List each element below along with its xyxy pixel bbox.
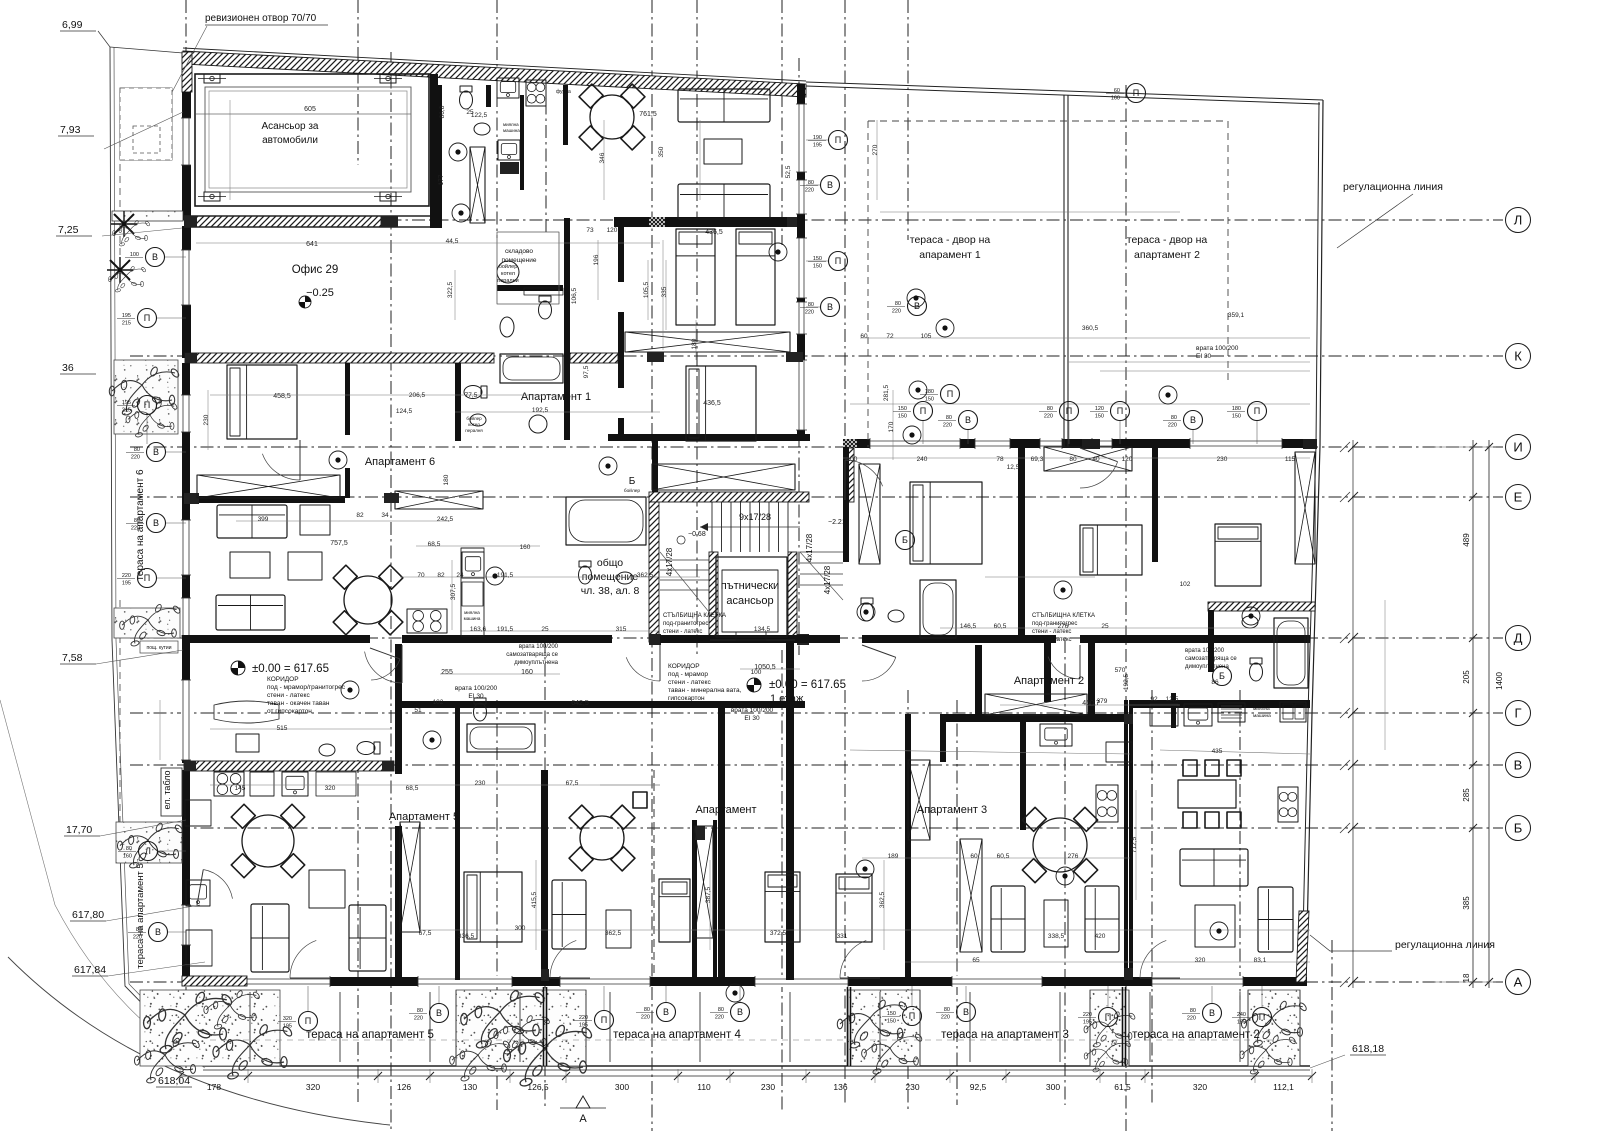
svg-text:191,5: 191,5	[497, 626, 514, 633]
svg-text:146,5: 146,5	[960, 623, 977, 630]
svg-text:В: В	[1190, 415, 1196, 425]
svg-text:379: 379	[1097, 698, 1108, 705]
svg-text:12,5: 12,5	[1166, 696, 1179, 703]
svg-text:97,5: 97,5	[583, 365, 590, 378]
svg-text:160: 160	[1111, 96, 1120, 102]
svg-text:П: П	[601, 1015, 607, 1025]
svg-text:362,5: 362,5	[605, 930, 622, 937]
svg-text:195: 195	[122, 400, 131, 406]
svg-text:195: 195	[122, 581, 131, 587]
svg-text:191,5: 191,5	[497, 572, 514, 579]
svg-text:220: 220	[715, 1015, 724, 1021]
svg-text:В: В	[436, 1008, 442, 1018]
svg-text:195: 195	[1237, 1020, 1246, 1026]
svg-text:60,5: 60,5	[994, 623, 1007, 630]
svg-text:П: П	[1117, 406, 1123, 416]
svg-text:220: 220	[805, 188, 814, 194]
svg-text:215: 215	[122, 408, 131, 414]
svg-text:80: 80	[134, 518, 140, 524]
svg-text:145: 145	[235, 785, 246, 792]
svg-text:150: 150	[1095, 414, 1104, 420]
svg-text:102: 102	[433, 699, 444, 706]
svg-text:240: 240	[1237, 1012, 1246, 1018]
svg-text:70: 70	[417, 572, 425, 579]
svg-text:338,5: 338,5	[1048, 933, 1065, 940]
svg-text:86,8: 86,8	[439, 105, 446, 118]
svg-text:458,5: 458,5	[273, 393, 291, 400]
svg-text:67,5: 67,5	[419, 930, 432, 937]
svg-text:112,1: 112,1	[1273, 1082, 1294, 1092]
svg-text:В: В	[155, 927, 161, 937]
svg-text:6,99: 6,99	[62, 19, 83, 31]
svg-text:92: 92	[1150, 696, 1158, 703]
svg-text:195: 195	[122, 313, 131, 319]
svg-text:34: 34	[381, 512, 389, 519]
svg-text:СТЪЛБИЩНА КЛЕТКА: СТЪЛБИЩНА КЛЕТКА	[1032, 613, 1095, 619]
svg-text:Д: Д	[1514, 631, 1523, 646]
svg-text:195: 195	[813, 143, 822, 149]
svg-text:Б: Б	[1219, 671, 1225, 681]
svg-text:80: 80	[718, 1007, 724, 1013]
svg-text:150: 150	[1232, 414, 1241, 420]
svg-text:80: 80	[417, 1008, 423, 1014]
svg-text:52,5: 52,5	[785, 165, 792, 178]
svg-text:220: 220	[414, 1016, 423, 1022]
svg-text:Л: Л	[1514, 213, 1523, 228]
svg-text:80: 80	[1190, 1008, 1196, 1014]
svg-text:220: 220	[1083, 1012, 1092, 1018]
svg-text:1400: 1400	[1495, 672, 1504, 690]
svg-text:помещение: помещение	[502, 257, 537, 264]
svg-text:220: 220	[641, 1015, 650, 1021]
svg-text:60: 60	[1114, 88, 1120, 94]
svg-text:220: 220	[943, 423, 952, 429]
svg-text:миялна: миялна	[503, 122, 519, 127]
svg-text:36: 36	[62, 362, 74, 374]
svg-text:110: 110	[697, 1082, 711, 1092]
svg-text:регулационна линия: регулационна линия	[1343, 181, 1443, 193]
svg-text:51: 51	[414, 707, 422, 714]
svg-text:А: А	[1514, 975, 1523, 990]
svg-text:−0.68: −0.68	[688, 531, 706, 538]
svg-text:120: 120	[607, 227, 618, 234]
svg-text:1 етаж: 1 етаж	[770, 693, 804, 705]
svg-text:КОРИДОР: КОРИДОР	[267, 676, 299, 683]
svg-text:617,80: 617,80	[72, 909, 104, 921]
svg-text:Е: Е	[1514, 490, 1523, 505]
svg-text:320: 320	[1195, 957, 1206, 964]
svg-text:360,5: 360,5	[1082, 325, 1099, 332]
svg-text:82: 82	[437, 572, 445, 579]
svg-text:80: 80	[895, 301, 901, 307]
svg-text:7,58: 7,58	[62, 652, 83, 664]
svg-text:78: 78	[996, 456, 1004, 463]
svg-text:димоуплътнена: димоуплътнена	[514, 660, 558, 666]
svg-text:П: П	[1259, 1012, 1265, 1022]
svg-text:60: 60	[970, 853, 978, 860]
svg-text:фурна: фурна	[556, 89, 571, 95]
svg-text:80: 80	[126, 846, 132, 852]
svg-text:П: П	[920, 406, 926, 416]
svg-text:100: 100	[130, 252, 139, 258]
svg-text:ел. табло: ел. табло	[162, 770, 172, 809]
svg-text:Г: Г	[1514, 706, 1521, 721]
svg-text:320: 320	[325, 785, 336, 792]
svg-text:72: 72	[886, 333, 894, 340]
svg-text:320: 320	[306, 1082, 320, 1092]
svg-text:120: 120	[1122, 456, 1133, 463]
svg-text:врата 100/200: врата 100/200	[519, 644, 559, 650]
svg-text:170: 170	[888, 421, 895, 432]
svg-text:215: 215	[122, 321, 131, 327]
svg-text:230: 230	[475, 780, 486, 787]
svg-text:435: 435	[1212, 748, 1223, 755]
svg-text:124,5: 124,5	[396, 408, 413, 415]
svg-text:бойлер: бойлер	[499, 263, 518, 270]
svg-text:242,5: 242,5	[437, 516, 454, 523]
svg-text:апарамент 1: апарамент 1	[919, 249, 981, 261]
svg-text:220: 220	[131, 455, 140, 461]
svg-text:машина: машина	[503, 128, 520, 133]
svg-text:68,5: 68,5	[406, 785, 419, 792]
svg-text:160: 160	[521, 669, 533, 676]
svg-text:150: 150	[813, 264, 822, 270]
svg-text:300: 300	[1046, 1082, 1060, 1092]
svg-text:220: 220	[1168, 423, 1177, 429]
svg-text:134,5: 134,5	[754, 626, 771, 633]
svg-text:складово: складово	[505, 248, 533, 255]
svg-text:П: П	[305, 1016, 311, 1026]
svg-text:195: 195	[283, 1024, 292, 1030]
svg-text:машина: машина	[1253, 714, 1271, 719]
svg-text:В: В	[153, 447, 159, 457]
svg-text:605: 605	[304, 106, 316, 113]
svg-text:П: П	[1133, 88, 1139, 98]
svg-text:641: 641	[306, 241, 318, 248]
svg-text:80: 80	[1047, 406, 1053, 412]
svg-text:65: 65	[972, 957, 980, 964]
svg-text:220: 220	[1187, 1016, 1196, 1022]
svg-text:Б: Б	[629, 476, 636, 487]
svg-text:ревизионен отвор 70/70: ревизионен отвор 70/70	[205, 13, 317, 24]
svg-text:757,5: 757,5	[330, 540, 348, 547]
svg-text:В: В	[737, 1007, 743, 1017]
svg-text:врата 100/200: врата 100/200	[1185, 648, 1225, 654]
svg-text:712,5: 712,5	[1131, 836, 1138, 853]
svg-text:4x17/28: 4x17/28	[823, 565, 832, 594]
svg-text:350: 350	[658, 146, 665, 157]
svg-text:220: 220	[131, 526, 140, 532]
svg-text:В: В	[1514, 758, 1523, 773]
svg-text:П: П	[835, 135, 841, 145]
svg-text:апартамент 2: апартамент 2	[1134, 249, 1200, 261]
svg-text:В: В	[152, 252, 158, 262]
svg-text:515: 515	[277, 725, 288, 732]
svg-text:под-гранитогрес: под-гранитогрес	[1032, 621, 1077, 627]
svg-text:220: 220	[892, 309, 901, 315]
svg-text:120: 120	[1095, 406, 1104, 412]
svg-text:КОРИДОР: КОРИДОР	[668, 663, 700, 670]
svg-text:761,5: 761,5	[639, 111, 657, 118]
svg-text:стени - латекс: стени - латекс	[267, 692, 310, 699]
svg-text:под - мрамор/гранитогрес: под - мрамор/гранитогрес	[267, 684, 346, 691]
svg-text:196: 196	[593, 254, 600, 265]
svg-text:П: П	[144, 573, 150, 583]
svg-text:Апартамент 5: Апартамент 5	[389, 811, 459, 823]
svg-text:В: В	[663, 1007, 669, 1017]
svg-text:пътнически: пътнически	[721, 580, 779, 592]
svg-text:пощ. кутии: пощ. кутии	[147, 645, 172, 651]
svg-text:150: 150	[898, 406, 907, 412]
svg-text:чл. 38, ал. 8: чл. 38, ал. 8	[581, 585, 640, 597]
svg-text:177: 177	[438, 174, 445, 185]
svg-text:80: 80	[1069, 456, 1077, 463]
svg-text:60,5: 60,5	[997, 853, 1010, 860]
svg-text:126,5: 126,5	[527, 1082, 549, 1092]
svg-text:315: 315	[616, 626, 627, 633]
svg-text:Б: Б	[902, 535, 908, 545]
svg-text:436,5: 436,5	[705, 229, 723, 236]
svg-text:П: П	[1254, 406, 1260, 416]
svg-text:220: 220	[805, 310, 814, 316]
svg-text:П: П	[1066, 406, 1072, 416]
svg-text:160: 160	[520, 544, 531, 551]
svg-text:220: 220	[1044, 414, 1053, 420]
svg-text:195: 195	[1083, 1020, 1092, 1026]
svg-text:230: 230	[761, 1082, 775, 1092]
svg-text:281,5: 281,5	[883, 384, 890, 401]
svg-text:102: 102	[1180, 581, 1191, 588]
svg-text:±0.00 = 617.65: ±0.00 = 617.65	[252, 663, 329, 675]
svg-text:322,5: 322,5	[447, 281, 454, 298]
svg-text:самозатваряща се: самозатваряща се	[1185, 656, 1237, 662]
svg-text:18: 18	[1462, 973, 1471, 982]
svg-text:300: 300	[615, 1082, 629, 1092]
svg-text:359,1: 359,1	[1228, 312, 1245, 319]
svg-text:285: 285	[1462, 788, 1471, 802]
svg-text:Асансьор за: Асансьор за	[261, 121, 318, 132]
svg-text:420: 420	[1095, 933, 1106, 940]
svg-text:40: 40	[1092, 456, 1100, 463]
svg-text:192,5: 192,5	[532, 407, 549, 414]
svg-text:EI 30: EI 30	[1196, 353, 1212, 360]
svg-text:миялна: миялна	[1253, 707, 1270, 712]
svg-text:385: 385	[1462, 896, 1471, 910]
svg-text:126: 126	[397, 1082, 411, 1092]
svg-text:тераса на апартамент 5: тераса на апартамент 5	[135, 863, 146, 969]
svg-text:192,5: 192,5	[1123, 673, 1130, 690]
svg-text:Апартамент 6: Апартамент 6	[365, 456, 435, 468]
svg-text:180: 180	[443, 474, 450, 485]
svg-text:тераса на апартамент 2: тераса на апартамент 2	[1132, 1029, 1260, 1041]
svg-text:П: П	[947, 389, 953, 399]
svg-text:230: 230	[905, 1082, 919, 1092]
svg-text:346: 346	[599, 152, 606, 163]
svg-text:EI 30: EI 30	[744, 715, 760, 722]
svg-text:150: 150	[887, 1019, 896, 1025]
svg-text:150: 150	[898, 414, 907, 420]
svg-text:таван - окачен таван: таван - окачен таван	[267, 700, 330, 707]
svg-text:80: 80	[644, 1007, 650, 1013]
svg-text:25: 25	[466, 109, 474, 116]
svg-text:220: 220	[133, 935, 142, 941]
svg-text:160: 160	[123, 854, 132, 860]
svg-text:стени - латекс: стени - латекс	[668, 679, 711, 686]
svg-text:П: П	[144, 313, 150, 323]
svg-text:тераса на апартамент 5: тераса на апартамент 5	[306, 1029, 434, 1041]
svg-text:А: А	[579, 1113, 587, 1125]
svg-text:276: 276	[1068, 853, 1079, 860]
svg-text:СТЪЛБИЩНА КЛЕТКА: СТЪЛБИЩНА КЛЕТКА	[663, 613, 726, 619]
svg-text:П: П	[144, 400, 150, 410]
svg-text:136: 136	[833, 1082, 847, 1092]
svg-text:гипсокартон: гипсокартон	[668, 695, 705, 702]
svg-text:618,18: 618,18	[1352, 1043, 1384, 1055]
svg-text:7,25: 7,25	[58, 224, 79, 236]
svg-text:180: 180	[1232, 406, 1241, 412]
svg-text:4x17/28: 4x17/28	[805, 533, 814, 562]
svg-text:Апартамент 2: Апартамент 2	[1014, 675, 1084, 687]
svg-text:−0.25: −0.25	[306, 287, 334, 299]
svg-text:180: 180	[691, 338, 698, 349]
svg-text:105: 105	[921, 333, 932, 340]
svg-text:В: В	[153, 518, 159, 528]
svg-text:тераса на апартамент 4: тераса на апартамент 4	[613, 1029, 741, 1041]
svg-text:178: 178	[207, 1082, 221, 1092]
svg-text:общо: общо	[597, 557, 623, 569]
svg-text:106,5: 106,5	[571, 287, 578, 304]
svg-text:В: В	[963, 1007, 969, 1017]
svg-text:83,1: 83,1	[1254, 957, 1267, 964]
svg-text:100: 100	[847, 456, 858, 463]
svg-text:В: В	[827, 302, 833, 312]
svg-text:пералня: пералня	[465, 428, 483, 433]
svg-text:Апартамент 3: Апартамент 3	[917, 804, 987, 816]
svg-text:73: 73	[586, 227, 594, 234]
svg-text:В: В	[827, 180, 833, 190]
svg-text:331: 331	[837, 933, 848, 940]
svg-text:самозатваряща се: самозатваряща се	[506, 652, 558, 658]
svg-text:68,5: 68,5	[428, 541, 441, 548]
svg-text:130: 130	[463, 1082, 477, 1092]
svg-text:240: 240	[917, 456, 928, 463]
svg-text:67,5: 67,5	[566, 780, 579, 787]
svg-text:бойлер: бойлер	[466, 415, 482, 421]
svg-text:617,84: 617,84	[74, 964, 106, 976]
svg-text:69,3: 69,3	[1031, 456, 1044, 463]
svg-text:307,5: 307,5	[450, 583, 457, 600]
svg-text:врата 100/200: врата 100/200	[731, 707, 774, 714]
svg-text:61,5: 61,5	[1114, 1082, 1131, 1092]
svg-text:399: 399	[258, 516, 269, 523]
svg-text:стени - латекс: стени - латекс	[663, 629, 702, 635]
svg-text:И: И	[1513, 440, 1522, 455]
svg-text:25: 25	[1101, 623, 1109, 630]
svg-text:12,5: 12,5	[1007, 464, 1020, 471]
svg-text:80: 80	[946, 415, 952, 421]
svg-text:тераса - двор на: тераса - двор на	[1127, 234, 1208, 246]
svg-text:В: В	[1209, 1008, 1215, 1018]
svg-text:336,5: 336,5	[458, 933, 475, 940]
svg-text:618,04: 618,04	[158, 1075, 190, 1087]
svg-text:92,5: 92,5	[970, 1082, 987, 1092]
svg-text:таван - минерална вата,: таван - минерална вата,	[668, 687, 742, 694]
svg-text:642,5: 642,5	[571, 700, 589, 707]
svg-text:80: 80	[944, 1007, 950, 1013]
svg-text:EI 30: EI 30	[468, 693, 484, 700]
svg-text:150: 150	[887, 1011, 896, 1017]
svg-text:77,5: 77,5	[465, 392, 478, 399]
svg-text:под-гранитогрес: под-гранитогрес	[663, 621, 708, 627]
svg-text:Б: Б	[1514, 821, 1523, 836]
svg-text:105,5: 105,5	[643, 281, 650, 298]
svg-text:П: П	[1105, 1012, 1111, 1022]
svg-text:300: 300	[515, 925, 526, 932]
svg-text:387,5: 387,5	[705, 886, 712, 903]
svg-text:189: 189	[888, 853, 899, 860]
svg-text:котел: котел	[501, 271, 515, 277]
svg-text:163,6: 163,6	[470, 626, 487, 633]
svg-text:320: 320	[283, 1016, 292, 1022]
svg-text:220: 220	[579, 1015, 588, 1021]
svg-text:205: 205	[1462, 670, 1471, 684]
svg-text:от гипсокартон: от гипсокартон	[267, 708, 312, 715]
svg-text:44,5: 44,5	[446, 238, 459, 245]
svg-text:415,5: 415,5	[531, 891, 538, 908]
svg-text:бойлер: бойлер	[624, 487, 641, 494]
svg-text:асансьор: асансьор	[726, 595, 773, 607]
svg-text:82: 82	[356, 512, 364, 519]
svg-text:17,70: 17,70	[66, 824, 92, 836]
svg-text:362,5: 362,5	[637, 572, 654, 579]
svg-text:миялна: миялна	[464, 610, 480, 615]
svg-text:−2.21: −2.21	[828, 519, 846, 526]
svg-text:436,5: 436,5	[703, 400, 721, 407]
svg-text:±0.00 = 617.65: ±0.00 = 617.65	[769, 679, 846, 691]
svg-text:206,5: 206,5	[409, 392, 426, 399]
svg-text:Апартамент: Апартамент	[695, 804, 756, 816]
svg-text:Л: Л	[145, 846, 151, 856]
svg-text:тераса - двор на: тераса - двор на	[910, 234, 991, 246]
svg-text:П: П	[835, 256, 841, 266]
svg-text:9x17/28: 9x17/28	[739, 512, 771, 522]
svg-text:24: 24	[456, 572, 464, 579]
svg-text:320: 320	[1193, 1082, 1207, 1092]
svg-text:80: 80	[136, 927, 142, 933]
svg-text:врата 100/200: врата 100/200	[1196, 345, 1239, 352]
svg-text:машина: машина	[464, 616, 481, 621]
svg-text:570: 570	[1115, 667, 1126, 674]
svg-text:Апартамент 1: Апартамент 1	[521, 391, 591, 403]
svg-text:врата 100/200: врата 100/200	[455, 685, 498, 692]
svg-text:регулационна линия: регулационна линия	[1395, 939, 1495, 951]
svg-text:372,5: 372,5	[770, 930, 787, 937]
svg-text:195: 195	[579, 1023, 588, 1029]
svg-text:220: 220	[122, 573, 131, 579]
svg-text:100: 100	[751, 669, 762, 676]
svg-text:под - мрамор: под - мрамор	[668, 671, 708, 678]
svg-text:4x17/28: 4x17/28	[665, 547, 674, 576]
svg-text:80: 80	[134, 447, 140, 453]
svg-text:270: 270	[872, 144, 879, 155]
svg-text:таван - латекс: таван - латекс	[1032, 637, 1072, 643]
svg-text:255: 255	[441, 669, 453, 676]
svg-text:362,5: 362,5	[879, 891, 886, 908]
svg-text:Офис 29: Офис 29	[292, 264, 339, 276]
svg-text:80: 80	[1171, 415, 1177, 421]
svg-text:25: 25	[541, 626, 549, 633]
svg-text:П: П	[909, 1011, 915, 1021]
